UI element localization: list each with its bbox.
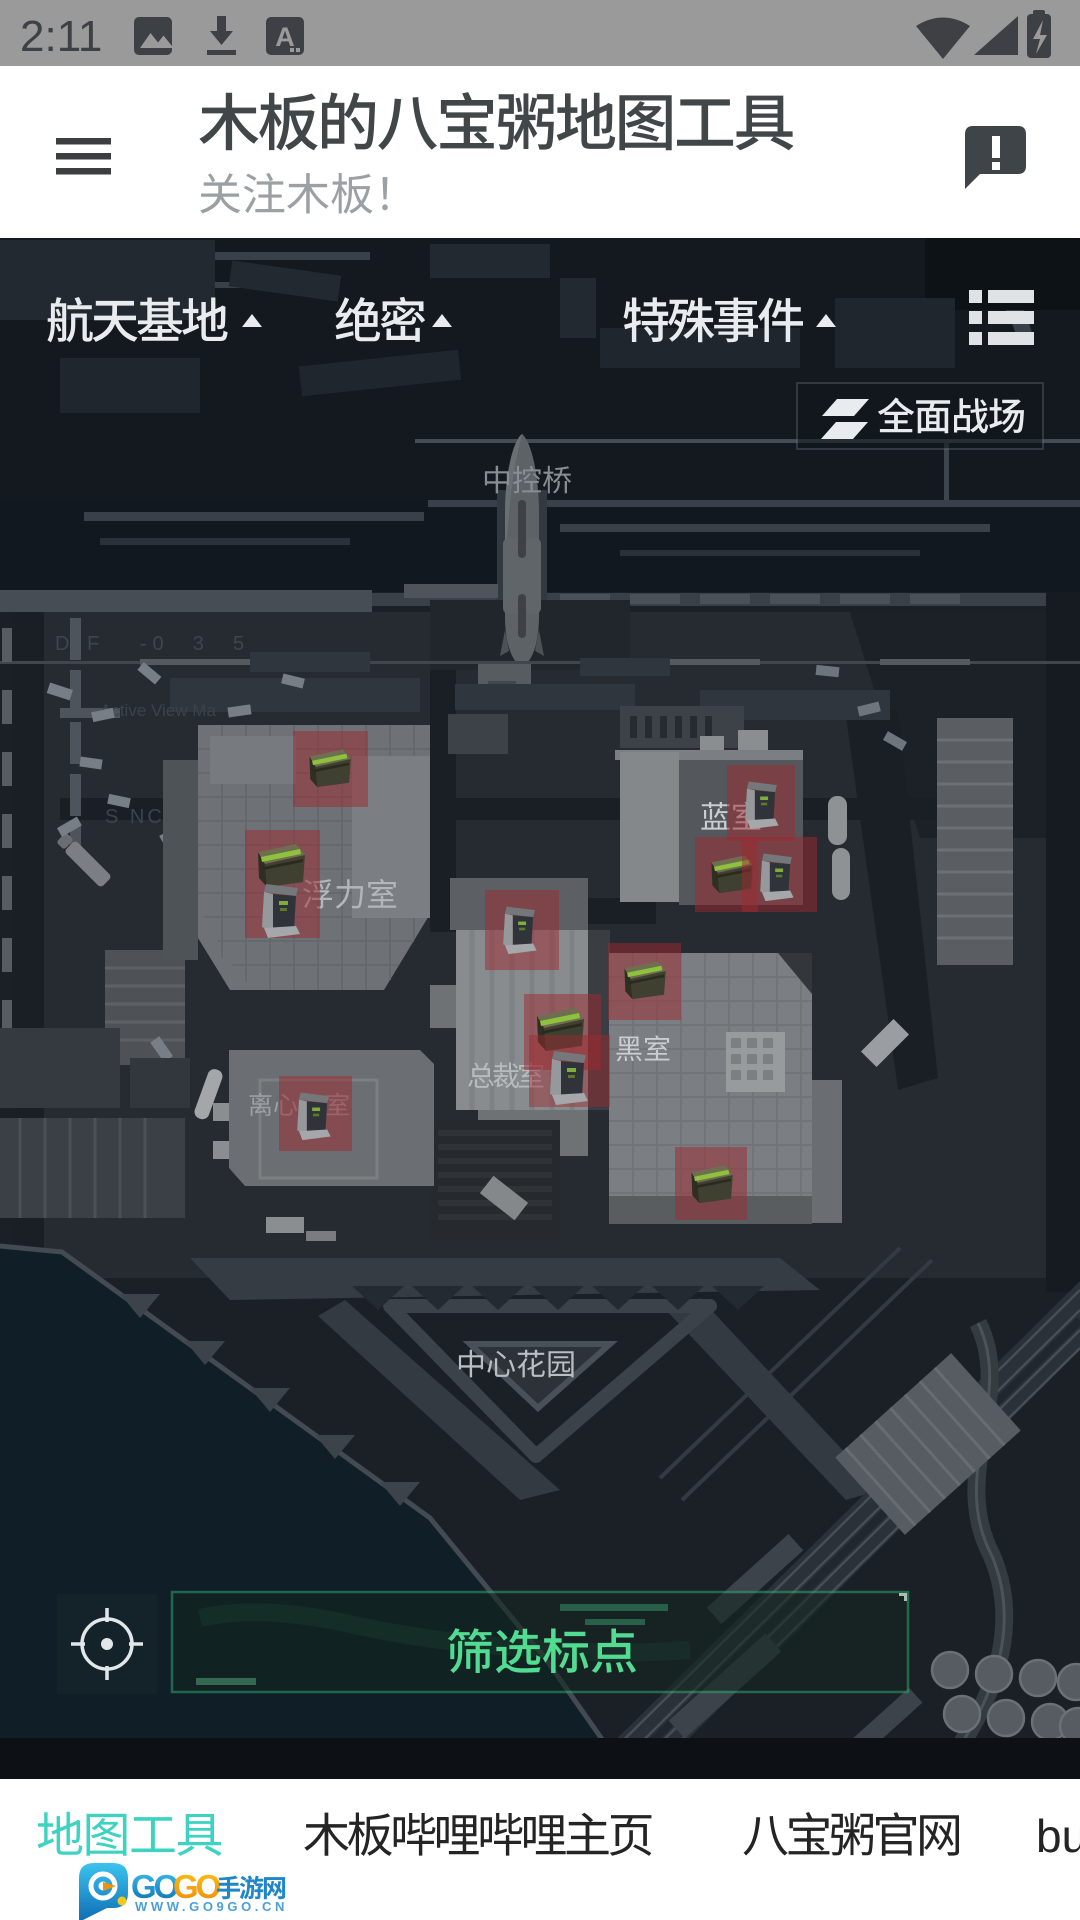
svg-text:Active View Ma: Active View Ma [100, 701, 216, 720]
svg-text:2:11: 2:11 [20, 12, 102, 61]
svg-text:WWW.GO9GO.CN: WWW.GO9GO.CN [135, 1899, 288, 1914]
svg-text:bu: bu [1036, 1810, 1080, 1862]
svg-text:A: A [275, 22, 295, 52]
svg-text:D F -0 3 5: D F -0 3 5 [55, 633, 250, 655]
